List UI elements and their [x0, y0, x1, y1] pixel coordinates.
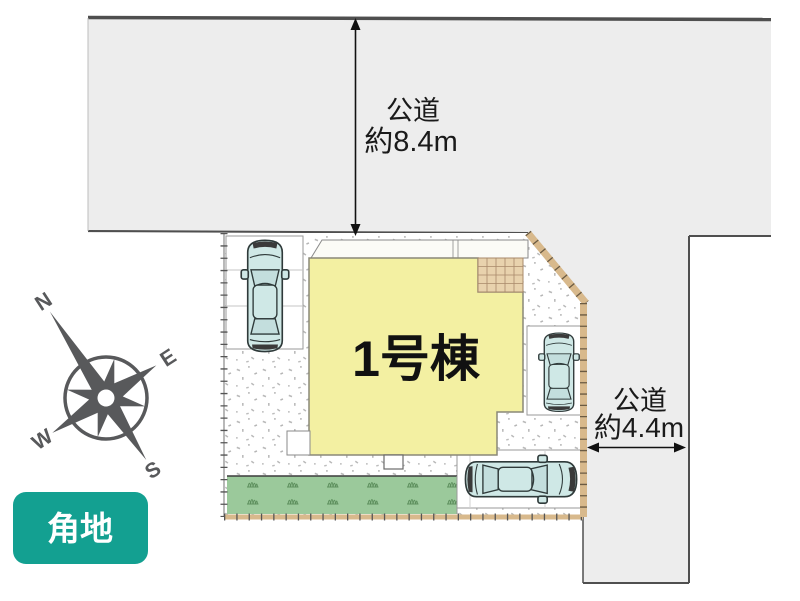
entrance-tiles [478, 258, 523, 292]
car-2 [539, 333, 579, 411]
compass-star-main [0, 279, 197, 495]
compass-east-label: E [156, 345, 180, 372]
compass-south-label: S [141, 457, 165, 484]
corner-lot-badge: 角地 [13, 492, 148, 564]
car-3 [465, 455, 576, 503]
rear-porch-step [384, 455, 403, 469]
lot: 1号棟 [224, 233, 586, 517]
side-step [287, 431, 310, 455]
building-label: 1号棟 [352, 331, 481, 387]
car-1 [241, 240, 289, 351]
grass-texture [227, 476, 457, 514]
site-plan-drawing: 1号棟 公道 約8.4m 公道 約4.4m [0, 0, 800, 601]
site-plan: 1号棟 公道 約8.4m 公道 約4.4m [0, 0, 800, 601]
road-top-edge [88, 18, 771, 20]
badge-label: 角地 [47, 510, 113, 547]
road-top-label-line1: 公道 [386, 96, 440, 126]
terrace-band [311, 240, 528, 258]
compass-icon: N E S W [0, 248, 227, 527]
compass-west-label: W [28, 425, 57, 455]
road-top-label-line2: 約8.4m [364, 125, 457, 158]
compass-north-label: N [31, 288, 56, 316]
road-right-label-line2: 約4.4m [594, 412, 684, 443]
